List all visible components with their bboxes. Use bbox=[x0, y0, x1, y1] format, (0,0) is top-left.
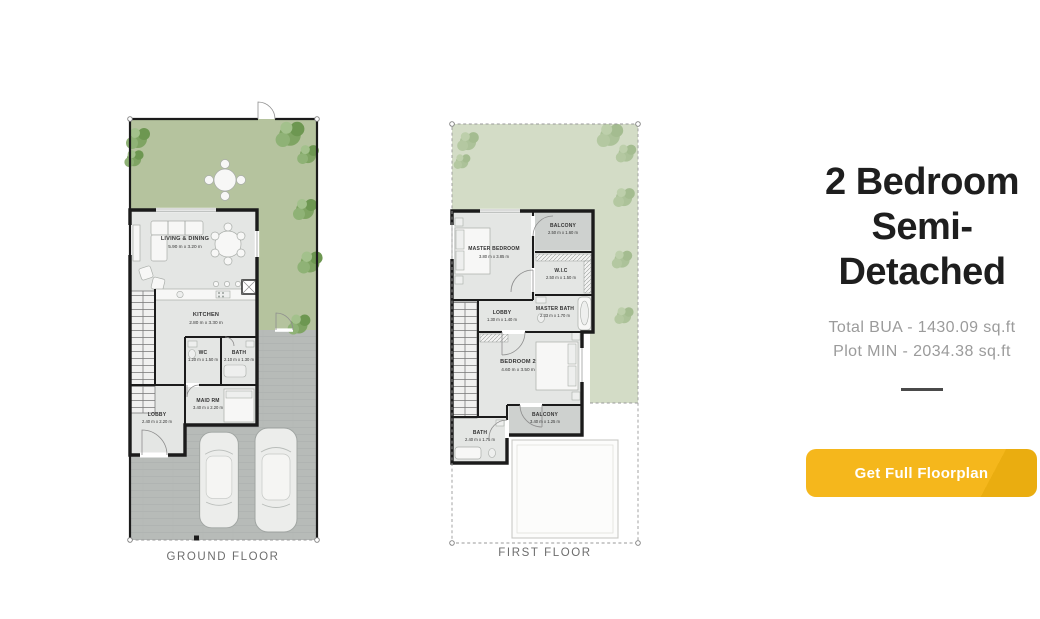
car-2 bbox=[255, 428, 297, 532]
svg-text:1.30 m x 1.40 m: 1.30 m x 1.40 m bbox=[487, 317, 518, 322]
spec-total-bua: Total BUA - 1430.09 sq.ft bbox=[790, 316, 1040, 340]
page-title: 2 Bedroom Semi- Detached bbox=[790, 160, 1040, 295]
svg-text:3.80 m x 3.85 m: 3.80 m x 3.85 m bbox=[479, 254, 510, 259]
svg-text:LIVING & DINING: LIVING & DINING bbox=[161, 236, 209, 242]
svg-text:LOBBY: LOBBY bbox=[148, 412, 167, 418]
roof-terrace bbox=[512, 440, 618, 538]
svg-text:MASTER BATH: MASTER BATH bbox=[536, 306, 574, 312]
svg-text:MAID RM: MAID RM bbox=[196, 398, 219, 404]
ground-floor-caption: GROUND FLOOR bbox=[128, 551, 318, 563]
title-line-1: 2 Bedroom bbox=[790, 160, 1040, 205]
bedroom2-bed bbox=[536, 332, 580, 400]
svg-text:BEDROOM 2: BEDROOM 2 bbox=[500, 359, 536, 365]
ground-floor-plan: LIVING & DINING 5.90 m x 3.20 m KITCHEN … bbox=[128, 113, 318, 540]
svg-text:BATH: BATH bbox=[473, 430, 488, 436]
console bbox=[133, 225, 140, 261]
svg-text:2.80 m x 3.30 m: 2.80 m x 3.30 m bbox=[189, 320, 223, 325]
first-floor-plan: MASTER BEDROOM 3.80 m x 3.85 m BALCONY 2… bbox=[450, 120, 640, 545]
svg-text:4.60 m x 3.50 m: 4.60 m x 3.50 m bbox=[501, 367, 535, 372]
svg-text:3.40 m x 2.20 m: 3.40 m x 2.20 m bbox=[193, 405, 224, 410]
first-floor-caption: FIRST FLOOR bbox=[450, 547, 640, 559]
staircase bbox=[453, 302, 477, 418]
bedroom2-wardrobe bbox=[480, 334, 508, 342]
svg-text:5.90 m x 3.20 m: 5.90 m x 3.20 m bbox=[168, 244, 202, 249]
floorplan-page: LIVING & DINING 5.90 m x 3.20 m KITCHEN … bbox=[0, 0, 1040, 619]
staircase bbox=[131, 291, 155, 413]
shaft-box bbox=[242, 280, 256, 294]
car-1 bbox=[200, 432, 239, 528]
svg-text:BALCONY: BALCONY bbox=[532, 412, 559, 418]
svg-text:2.10 m x 1.30 m: 2.10 m x 1.30 m bbox=[224, 357, 255, 362]
svg-text:3.40 m x 1.25 m: 3.40 m x 1.25 m bbox=[530, 419, 561, 424]
svg-text:2.40 m x 2.20 m: 2.40 m x 2.20 m bbox=[142, 419, 173, 424]
svg-text:2.40 m x 1.75 m: 2.40 m x 1.75 m bbox=[465, 437, 496, 442]
svg-text:WC: WC bbox=[199, 350, 208, 356]
specs: Total BUA - 1430.09 sq.ft Plot MIN - 203… bbox=[790, 316, 1040, 364]
info-panel: 2 Bedroom Semi- Detached Total BUA - 143… bbox=[790, 160, 1040, 520]
title-line-2: Semi- bbox=[790, 205, 1040, 250]
title-line-3: Detached bbox=[790, 250, 1040, 295]
svg-text:2.50 m x 1.60 m: 2.50 m x 1.60 m bbox=[548, 230, 579, 235]
svg-text:1.20 m x 1.50 m: 1.20 m x 1.50 m bbox=[188, 357, 219, 362]
svg-text:2.50 m x 1.50 m: 2.50 m x 1.50 m bbox=[546, 275, 577, 280]
get-full-floorplan-button[interactable]: Get Full Floorplan bbox=[806, 449, 1037, 497]
svg-text:KITCHEN: KITCHEN bbox=[193, 312, 219, 318]
svg-text:BALCONY: BALCONY bbox=[550, 223, 577, 229]
svg-text:W.I.C: W.I.C bbox=[554, 268, 567, 274]
maid-bed bbox=[224, 389, 254, 422]
svg-text:LOBBY: LOBBY bbox=[493, 310, 512, 316]
svg-text:2.33 m x 1.70 m: 2.33 m x 1.70 m bbox=[540, 313, 571, 318]
svg-text:MASTER BEDROOM: MASTER BEDROOM bbox=[468, 246, 519, 252]
ground-floor-svg: LIVING & DINING 5.90 m x 3.20 m KITCHEN … bbox=[128, 113, 318, 540]
first-floor-svg: MASTER BEDROOM 3.80 m x 3.85 m BALCONY 2… bbox=[450, 120, 640, 545]
spec-plot-min: Plot MIN - 2034.38 sq.ft bbox=[790, 340, 1040, 364]
divider bbox=[901, 388, 943, 391]
svg-text:BATH: BATH bbox=[232, 350, 247, 356]
